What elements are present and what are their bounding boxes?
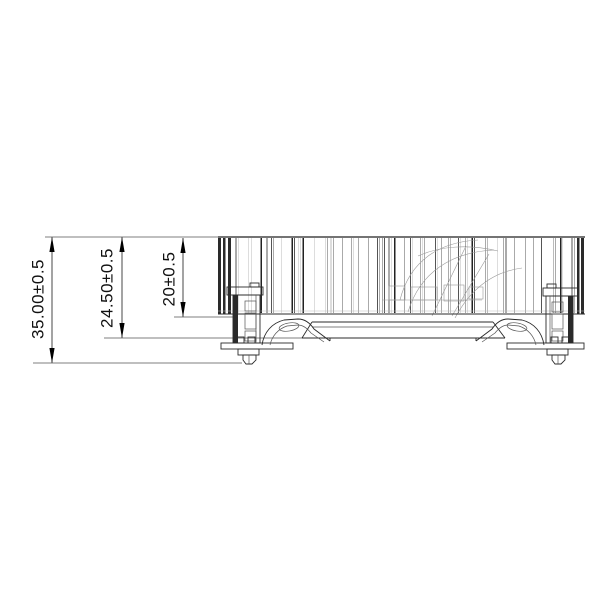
pin-spring-window [245, 331, 256, 341]
clip-arm-right [476, 319, 544, 345]
fan-hub-detail [411, 287, 437, 300]
arrow-down-icon [119, 323, 124, 338]
pin-spring-window [552, 314, 563, 329]
fin-end-bands [218, 238, 584, 314]
fin-lines-light [238, 238, 563, 313]
dim-mount-height-label: 24.50±0.5 [97, 248, 116, 328]
arrow-down-icon [180, 302, 185, 317]
pin-spring-window [245, 301, 256, 311]
bracket-bar-right [507, 343, 584, 349]
fin-band-right [577, 238, 580, 314]
bracket-bars [221, 343, 584, 349]
arrow-up-icon [49, 237, 54, 252]
pin-washer [547, 349, 568, 355]
drawing-sheet: 35.00±0.5 24.50±0.5 20±0.5 [0, 0, 600, 600]
dimension-body-height: 20±0.5 [159, 238, 185, 317]
pin-spring-window [552, 331, 563, 341]
fin-lines-dark [261, 238, 560, 313]
dim-body-height-label: 20±0.5 [159, 252, 178, 307]
pin-spring-window [245, 313, 256, 329]
base-step-right [493, 322, 505, 338]
pin-body-edge [233, 295, 238, 343]
fan-outline [382, 240, 522, 318]
pin-cap-tab [547, 284, 556, 288]
pin-washer [238, 349, 259, 355]
fin-band-right [581, 238, 584, 314]
fin-lines-mid [236, 238, 574, 313]
fin-band-left [228, 238, 231, 314]
clip-arm-hole [506, 321, 527, 332]
pin-tip [243, 355, 256, 364]
bracket-bar-left [221, 343, 293, 349]
fin-array [236, 238, 574, 313]
pin-body-edge [568, 296, 573, 343]
fin-band-left [223, 238, 226, 314]
pin-cap [227, 287, 263, 295]
heatsink-drawing: 35.00±0.5 24.50±0.5 20±0.5 [0, 0, 600, 600]
push-pin-right [543, 284, 579, 364]
push-pin-left [227, 283, 263, 364]
fin-band-left [218, 238, 221, 314]
arrow-up-icon [180, 238, 185, 253]
heatsink-body [218, 237, 585, 364]
clip-arm-hole [278, 321, 299, 332]
pin-tip [552, 355, 565, 364]
dimension-total-height: 35.00±0.5 [28, 237, 54, 363]
clip-arm-left [262, 319, 330, 345]
arrow-down-icon [49, 348, 54, 363]
dim-total-height-label: 35.00±0.5 [28, 259, 47, 339]
fan-hub-detail [469, 287, 483, 299]
arrow-up-icon [119, 237, 124, 252]
dimension-mount-height: 24.50±0.5 [97, 237, 124, 338]
